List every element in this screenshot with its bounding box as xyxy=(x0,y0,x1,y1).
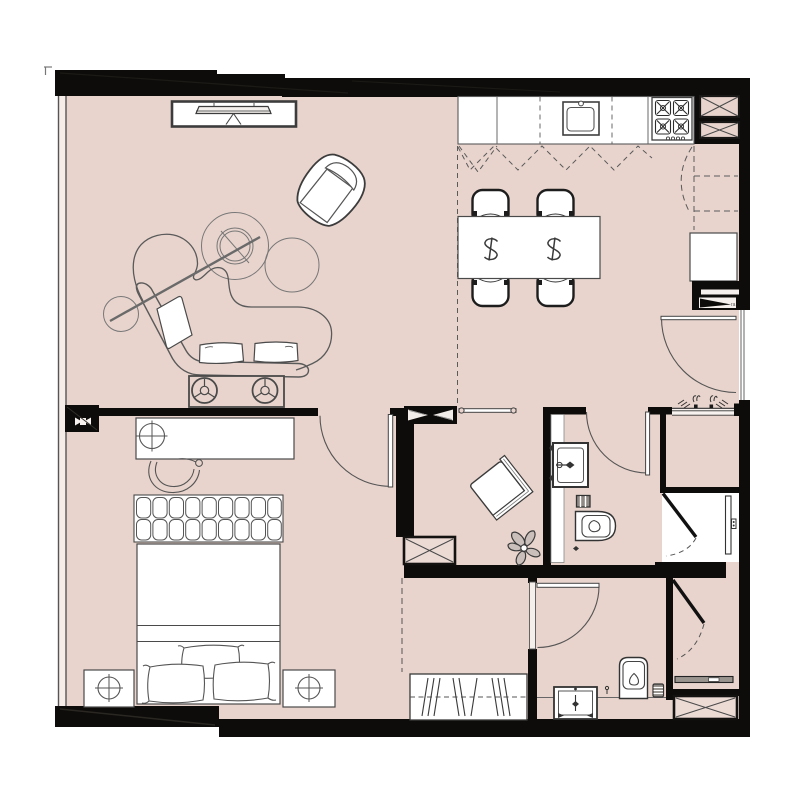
svg-text:ra: ra xyxy=(731,302,736,308)
